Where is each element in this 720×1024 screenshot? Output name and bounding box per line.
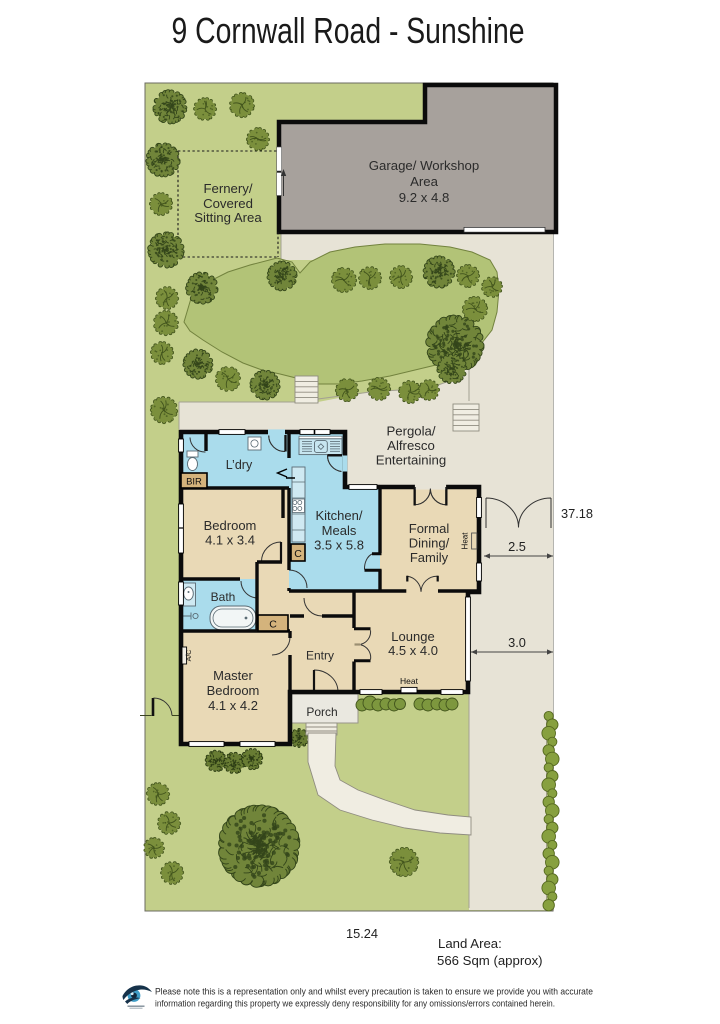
svg-text:Entry: Entry	[306, 649, 334, 663]
svg-text:Heat: Heat	[400, 676, 419, 686]
svg-text:Area: Area	[410, 174, 439, 189]
svg-text:Formal: Formal	[409, 521, 450, 536]
svg-text:L’dry: L’dry	[226, 458, 253, 472]
svg-text:Bedroom: Bedroom	[207, 683, 260, 698]
svg-text:Bedroom: Bedroom	[204, 518, 257, 533]
svg-text:4.1 x 3.4: 4.1 x 3.4	[205, 533, 255, 548]
svg-text:3.0: 3.0	[508, 635, 526, 650]
svg-text:9.2 x 4.8: 9.2 x 4.8	[399, 190, 450, 205]
svg-text:Fernery/: Fernery/	[203, 181, 252, 196]
svg-text:9 Cornwall Road - Sunshine: 9 Cornwall Road - Sunshine	[172, 10, 525, 51]
svg-text:Heat: Heat	[461, 532, 470, 550]
svg-text:Covered: Covered	[203, 196, 253, 211]
svg-text:C: C	[269, 619, 277, 631]
svg-text:4.1 x 4.2: 4.1 x 4.2	[208, 698, 258, 713]
svg-text:Garage/ Workshop: Garage/ Workshop	[369, 158, 479, 173]
svg-text:566 Sqm (approx): 566 Sqm (approx)	[437, 953, 543, 968]
svg-text:Kitchen/: Kitchen/	[316, 508, 363, 523]
svg-text:A/C: A/C	[186, 650, 193, 662]
svg-text:3.5 x 5.8: 3.5 x 5.8	[314, 538, 364, 553]
svg-text:37.18: 37.18	[561, 506, 593, 521]
svg-text:Meals: Meals	[322, 523, 357, 538]
svg-text:Porch: Porch	[306, 705, 337, 719]
svg-text:Pergola/: Pergola/	[386, 424, 435, 439]
svg-text:Dining/: Dining/	[409, 536, 450, 551]
svg-text:Please note this is a represen: Please note this is a representation onl…	[155, 987, 593, 997]
svg-text:Land Area:: Land Area:	[438, 936, 502, 951]
svg-text:2.5: 2.5	[508, 539, 526, 554]
svg-text:Sitting Area: Sitting Area	[194, 210, 262, 225]
svg-text:15.24: 15.24	[346, 926, 378, 941]
svg-text:C: C	[294, 548, 302, 560]
svg-text:Lounge: Lounge	[391, 629, 434, 644]
svg-text:Master: Master	[213, 668, 253, 683]
svg-text:Alfresco: Alfresco	[387, 438, 435, 453]
svg-text:Bath: Bath	[211, 590, 236, 604]
svg-text:information regarding this pro: information regarding this property we e…	[155, 999, 555, 1009]
svg-text:BIR: BIR	[186, 477, 202, 488]
svg-text:Family: Family	[410, 550, 449, 565]
svg-text:4.5 x 4.0: 4.5 x 4.0	[388, 643, 438, 658]
svg-text:Entertaining: Entertaining	[376, 453, 446, 468]
